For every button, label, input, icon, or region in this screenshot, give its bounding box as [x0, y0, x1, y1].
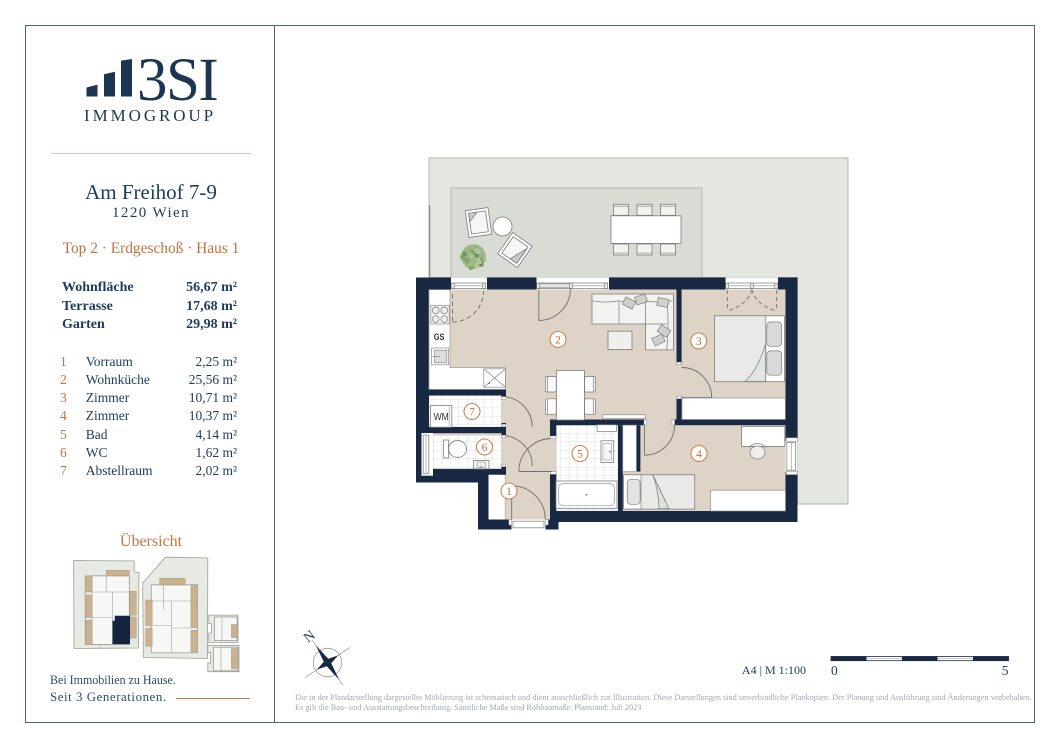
svg-text:7: 7: [469, 407, 475, 419]
svg-text:2: 2: [555, 335, 561, 347]
svg-text:4: 4: [696, 449, 702, 461]
svg-text:1: 1: [506, 486, 512, 498]
svg-text:N: N: [301, 628, 318, 646]
svg-text:GS: GS: [434, 332, 445, 343]
svg-text:5: 5: [577, 449, 583, 461]
svg-text:5: 5: [1002, 663, 1009, 678]
svg-text:3: 3: [696, 336, 702, 348]
svg-text:WM: WM: [434, 412, 449, 423]
svg-text:6: 6: [482, 442, 488, 454]
svg-text:0: 0: [831, 663, 838, 678]
